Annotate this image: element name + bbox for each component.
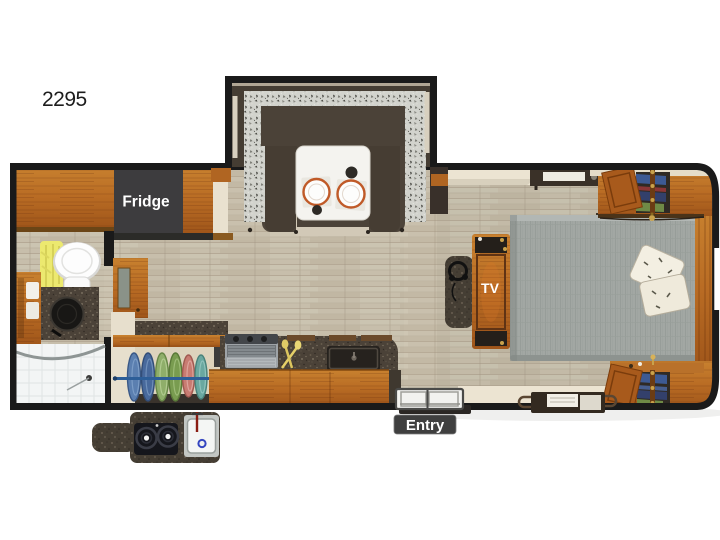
svg-text:Fridge: Fridge	[122, 194, 170, 211]
svg-text:TV: TV	[481, 280, 500, 296]
svg-text:Entry: Entry	[406, 417, 445, 434]
svg-text:2295: 2295	[42, 88, 87, 111]
